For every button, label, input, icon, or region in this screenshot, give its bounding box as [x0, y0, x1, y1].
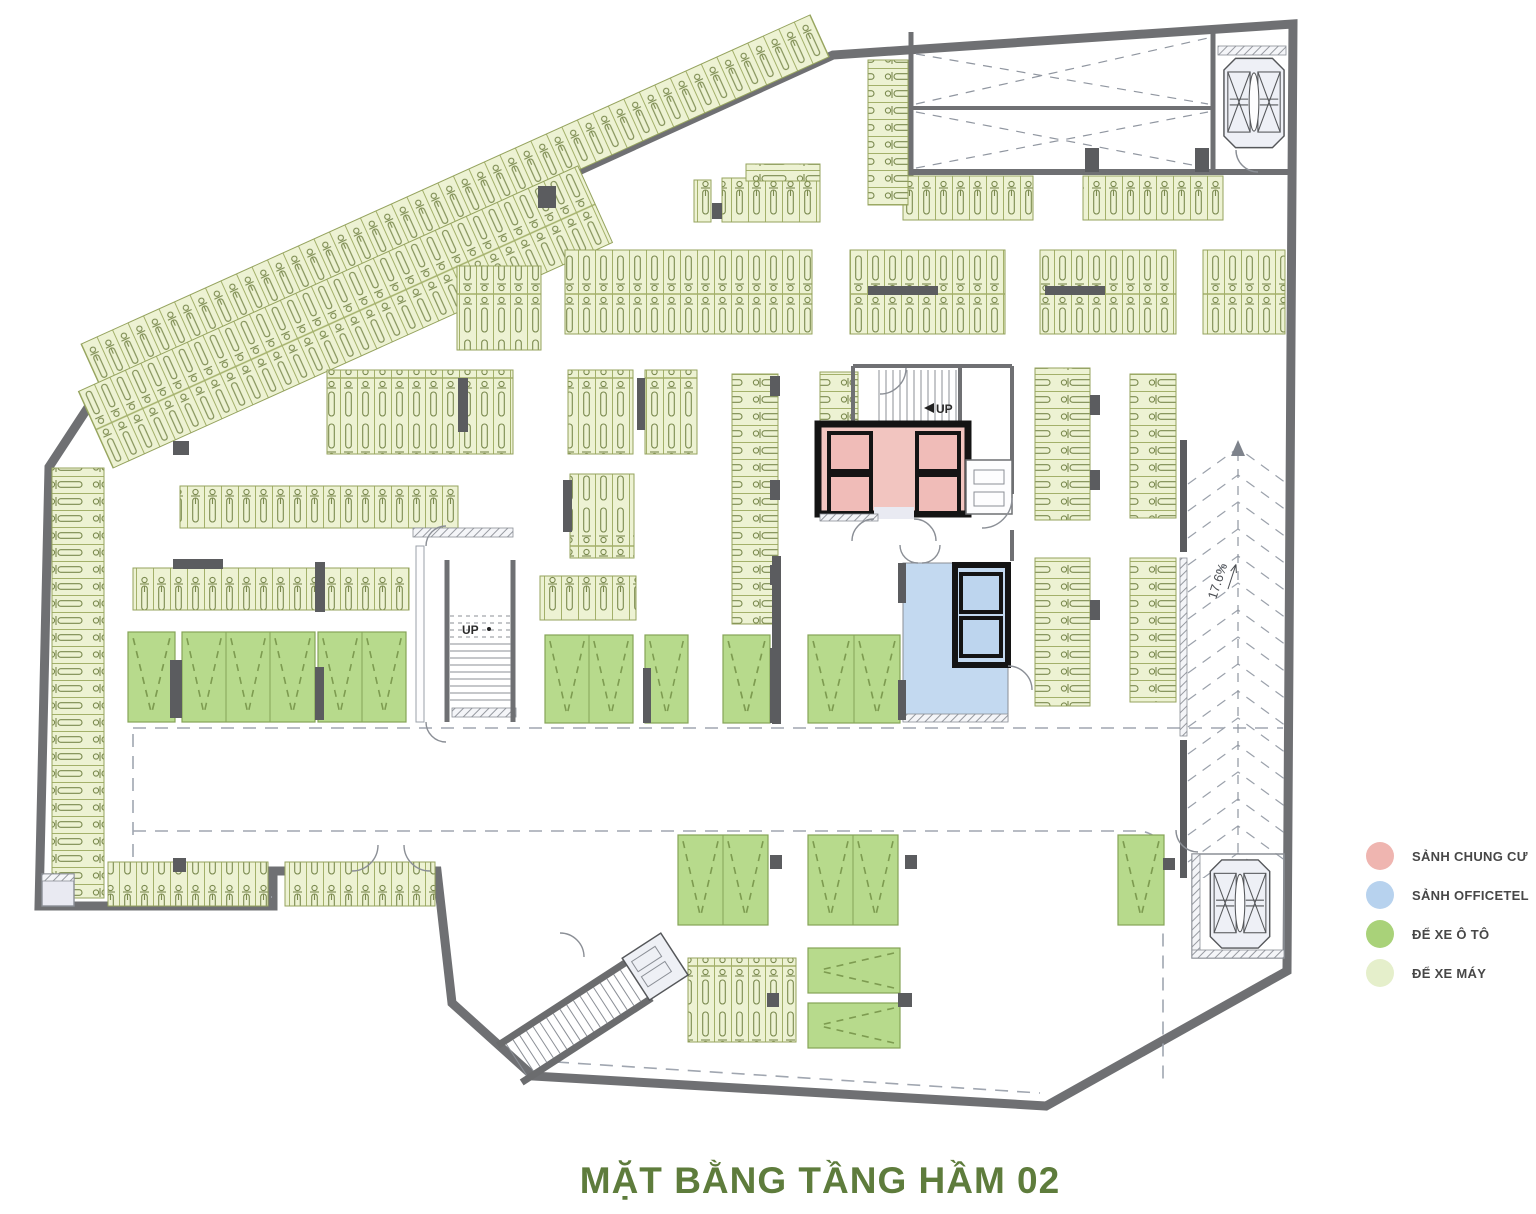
legend-item-de-xe-may: ĐỂ XE MÁY — [1366, 959, 1529, 987]
car-ramp: 17.6% — [1180, 440, 1286, 916]
legend: SẢNH CHUNG CƯ SẢNH OFFICETEL ĐỂ XE Ô TÔ … — [1366, 842, 1529, 998]
lobby-chung-cu — [818, 424, 968, 541]
ramp-slope-label: 17.6% — [1205, 561, 1231, 601]
legend-item-de-xe-o-to: ĐỂ XE Ô TÔ — [1366, 920, 1529, 948]
legend-swatch-sanh-officetel — [1366, 881, 1394, 909]
page-title: MẶT BẰNG TẦNG HẦM 02 — [52, 1160, 1536, 1202]
stair-core: UP — [413, 528, 516, 722]
equipment-room — [966, 460, 1012, 514]
lobby-officetel — [898, 545, 1032, 722]
legend-label-de-xe-may: ĐỂ XE MÁY — [1412, 966, 1486, 981]
legend-label-de-xe-o-to: ĐỂ XE Ô TÔ — [1412, 927, 1489, 942]
legend-swatch-de-xe-may — [1366, 959, 1394, 987]
legend-swatch-sanh-chung-cu — [1366, 842, 1394, 870]
legend-swatch-de-xe-o-to — [1366, 920, 1394, 948]
legend-label-sanh-officetel: SẢNH OFFICETEL — [1412, 888, 1529, 903]
legend-item-sanh-chung-cu: SẢNH CHUNG CƯ — [1366, 842, 1529, 870]
legend-item-sanh-officetel: SẢNH OFFICETEL — [1366, 881, 1529, 909]
corner-room — [42, 874, 74, 906]
stair-main-up-label: UP — [936, 402, 953, 416]
car-lift-bottom — [1210, 860, 1269, 948]
legend-label-sanh-chung-cu: SẢNH CHUNG CƯ — [1412, 849, 1528, 864]
moto-parking-strips — [52, 60, 1285, 1042]
floor-plan-svg: UP UP — [0, 0, 1536, 1214]
floor-plan-page: UP UP — [0, 0, 1536, 1214]
stair-core-up-label: UP — [462, 623, 479, 637]
car-lift-top — [1224, 58, 1284, 147]
